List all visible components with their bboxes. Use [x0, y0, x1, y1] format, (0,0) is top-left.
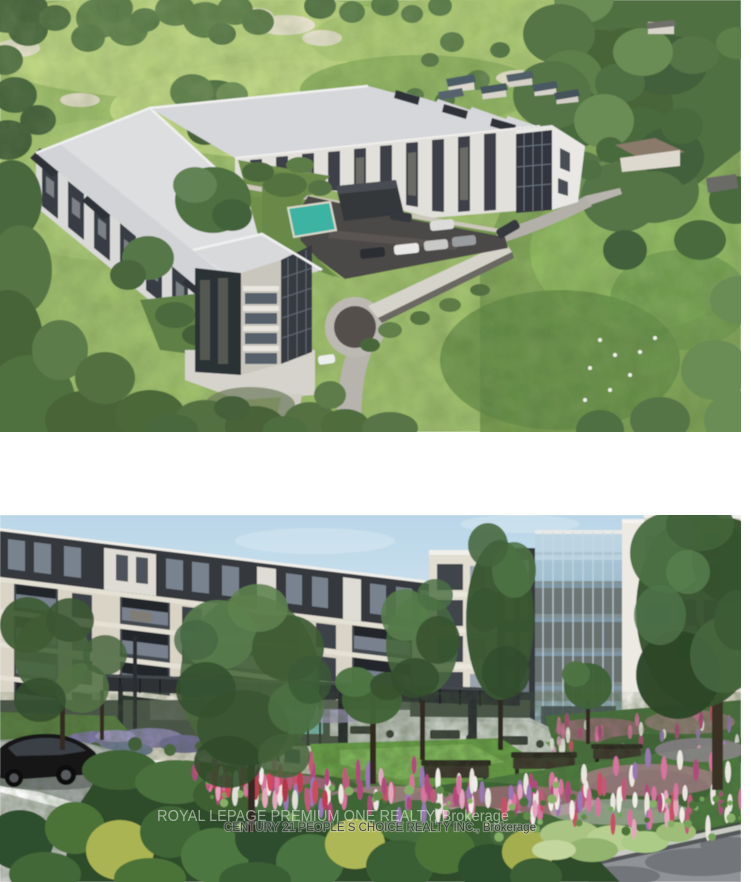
svg-text:CENTURY 21 PEOPLE S CHOICE REA: CENTURY 21 PEOPLE S CHOICE REALTY INC., …	[224, 820, 536, 834]
